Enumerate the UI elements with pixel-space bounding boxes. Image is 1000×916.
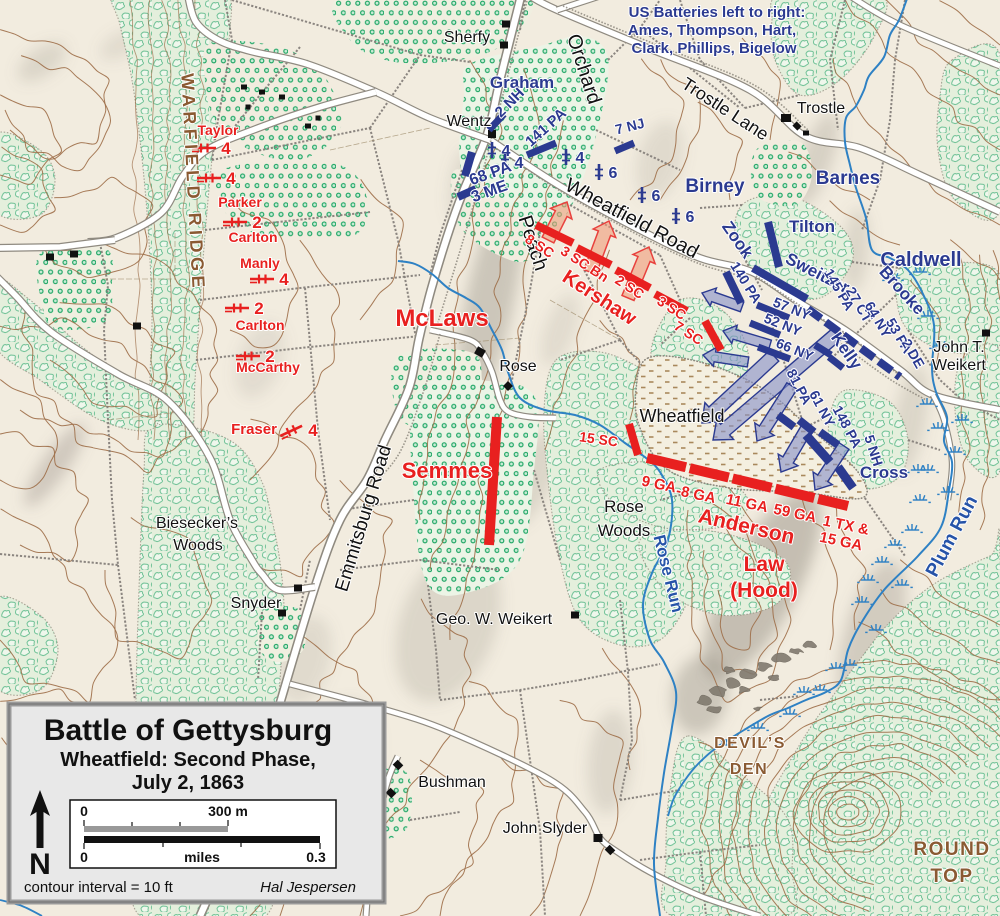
svg-text:McLaws: McLaws (395, 305, 488, 332)
svg-text:Wentz: Wentz (446, 113, 491, 130)
svg-text:6: 6 (686, 209, 695, 226)
svg-text:N: N (29, 848, 51, 881)
svg-text:Birney: Birney (685, 176, 745, 197)
svg-text:4: 4 (279, 270, 289, 289)
svg-text:Rose: Rose (499, 358, 536, 375)
svg-text:DEVIL’S: DEVIL’S (714, 735, 786, 752)
svg-text:US Batteries left to right:: US Batteries left to right: (629, 4, 806, 21)
svg-text:McCarthy: McCarthy (236, 359, 300, 375)
svg-text:Carlton: Carlton (229, 229, 278, 245)
svg-text:Barnes: Barnes (816, 168, 880, 189)
svg-text:Woods: Woods (173, 537, 223, 554)
svg-text:4: 4 (515, 155, 524, 172)
svg-text:miles: miles (184, 849, 220, 865)
svg-text:John T.: John T. (933, 339, 984, 356)
svg-text:Fraser: Fraser (231, 421, 277, 438)
svg-text:Weikert: Weikert (932, 357, 986, 374)
svg-text:Semmes: Semmes (402, 458, 493, 483)
svg-text:TOP: TOP (930, 866, 973, 887)
svg-text:(Hood): (Hood) (730, 579, 798, 602)
svg-text:Woods: Woods (598, 521, 651, 540)
svg-text:July 2, 1863: July 2, 1863 (132, 772, 244, 794)
svg-text:4: 4 (221, 139, 231, 158)
svg-text:4: 4 (308, 421, 318, 440)
svg-text:Cross: Cross (860, 463, 908, 482)
svg-text:DEN: DEN (730, 761, 768, 778)
svg-text:Sherfy: Sherfy (444, 29, 490, 46)
svg-text:Parker: Parker (218, 194, 262, 210)
svg-text:Wheatfield: Second Phase,: Wheatfield: Second Phase, (60, 749, 316, 771)
svg-text:4: 4 (226, 169, 236, 188)
svg-text:John Slyder: John Slyder (503, 820, 588, 837)
svg-text:0: 0 (80, 803, 88, 819)
svg-text:Graham: Graham (490, 73, 554, 92)
svg-text:Ames, Thompson, Hart,: Ames, Thompson, Hart, (628, 22, 796, 39)
svg-text:Bushman: Bushman (418, 774, 486, 791)
svg-text:Carlton: Carlton (236, 317, 285, 333)
svg-text:Clark, Phillips, Bigelow: Clark, Phillips, Bigelow (631, 40, 796, 57)
svg-text:Hal Jespersen: Hal Jespersen (260, 879, 356, 896)
svg-text:Manly: Manly (240, 255, 280, 271)
svg-text:6: 6 (652, 188, 661, 205)
svg-text:Geo. W. Weikert: Geo. W. Weikert (436, 611, 553, 628)
svg-text:Tilton: Tilton (789, 217, 835, 236)
svg-text:ROUND: ROUND (913, 839, 990, 860)
svg-text:contour interval = 10 ft: contour interval = 10 ft (24, 879, 174, 896)
svg-text:2: 2 (254, 299, 263, 318)
svg-text:Law: Law (744, 553, 786, 576)
svg-text:300 m: 300 m (208, 803, 248, 819)
svg-text:Wheatfield: Wheatfield (639, 406, 724, 426)
svg-text:Biesecker’s: Biesecker’s (156, 515, 238, 532)
svg-text:4: 4 (576, 150, 585, 167)
svg-text:0: 0 (80, 849, 88, 865)
svg-text:Snyder: Snyder (231, 595, 282, 612)
svg-text:Trostle: Trostle (797, 100, 845, 117)
svg-text:6: 6 (609, 165, 618, 182)
svg-text:0.3: 0.3 (306, 849, 326, 865)
svg-text:Taylor: Taylor (198, 122, 240, 138)
svg-text:Battle of Gettysburg: Battle of Gettysburg (44, 714, 332, 747)
svg-text:Rose: Rose (604, 497, 644, 516)
